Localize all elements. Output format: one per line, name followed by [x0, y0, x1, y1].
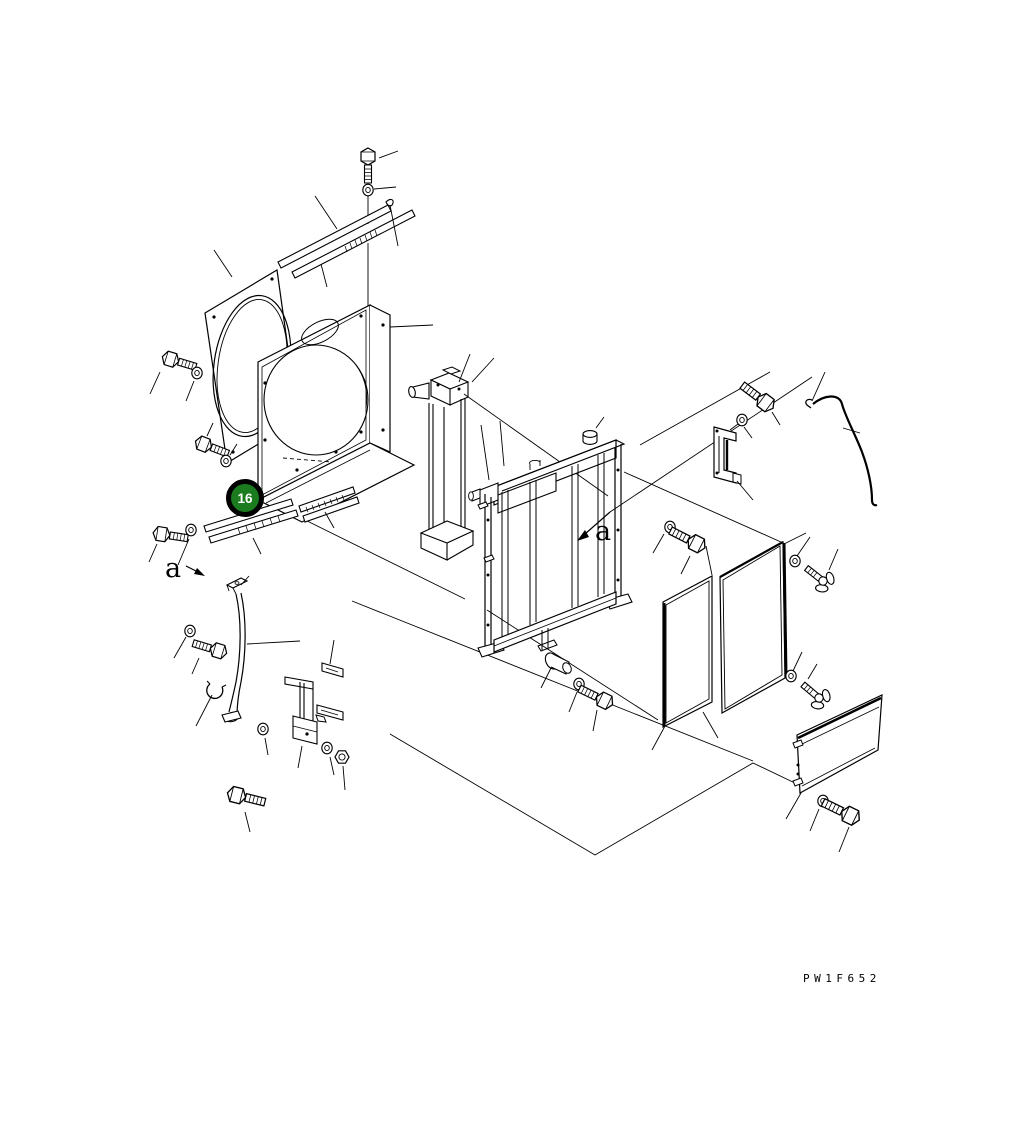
balloon-number: 16	[237, 491, 253, 506]
guard-bolt-upper	[150, 350, 202, 401]
drain-washer	[569, 678, 584, 712]
top-mount-washer	[363, 184, 396, 196]
drain-pipe	[222, 576, 300, 723]
svg-text:a: a	[165, 553, 181, 584]
wing-bolt-lower	[786, 652, 836, 715]
condenser-bolt	[820, 795, 863, 852]
pipe-washer-lower	[258, 723, 268, 755]
pipe-bolt-upper	[191, 636, 229, 674]
construction-lines	[293, 196, 812, 855]
drawing-code: PW1F652	[803, 972, 881, 985]
parts-diagram-page: 16 a	[0, 0, 1032, 1130]
upper-seal-strips	[278, 196, 415, 287]
pipe-clamp	[196, 681, 226, 726]
pipe-washer-upper	[174, 625, 195, 658]
svg-text:a: a	[595, 516, 611, 547]
c-bracket	[714, 421, 753, 500]
view-label-a-right: a	[577, 512, 611, 547]
rod-wire	[806, 372, 877, 505]
bracket-washer	[322, 742, 334, 775]
radiator-side-bolt	[667, 524, 708, 574]
filler-cap	[583, 431, 597, 445]
wing-bolt-upper	[790, 537, 840, 598]
top-mount-bolt	[361, 148, 398, 183]
condenser-net-panel	[786, 695, 882, 819]
pipe-bolt-lower	[226, 785, 267, 832]
view-label-a-left: a	[165, 553, 205, 584]
parts-diagram-canvas: 16 a	[0, 0, 1032, 1130]
oil-cooler	[408, 354, 494, 560]
bracket-nut	[335, 751, 349, 790]
part-balloon-16[interactable]: 16	[229, 482, 262, 515]
side-seal-left	[652, 546, 712, 750]
radiator-side-washer	[653, 521, 675, 553]
mounting-bracket	[285, 640, 343, 768]
